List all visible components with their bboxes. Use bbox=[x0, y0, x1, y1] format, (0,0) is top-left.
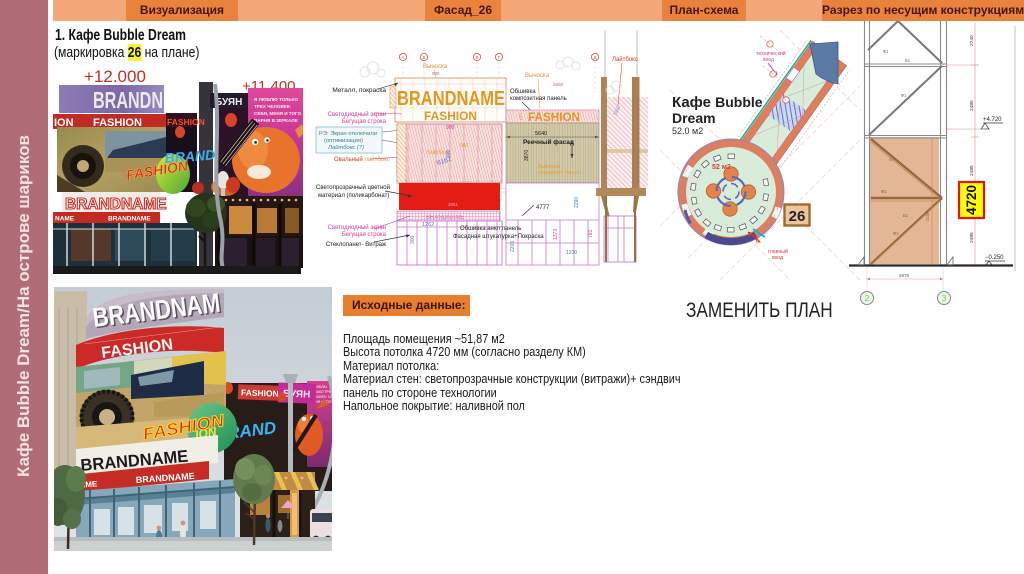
svg-text:Светодиодный экран: Светодиодный экран bbox=[328, 224, 386, 231]
svg-text:791: 791 bbox=[588, 229, 594, 238]
svg-text:Д: Д bbox=[593, 55, 596, 60]
svg-text:Лайтбокс (7): Лайтбокс (7) bbox=[327, 144, 364, 151]
svg-text:900: 900 bbox=[446, 125, 455, 131]
svg-text:главный: главный bbox=[768, 248, 788, 255]
svg-text:композитная панель: композитная панель bbox=[510, 96, 567, 102]
svg-text:2290: 2290 bbox=[574, 197, 580, 208]
svg-text:300: 300 bbox=[410, 235, 416, 244]
svg-text:Выноска: Выноска bbox=[525, 73, 550, 79]
svg-text:5640: 5640 bbox=[535, 131, 547, 137]
svg-text:4777: 4777 bbox=[536, 205, 550, 211]
svg-text:(оптимизация): (оптимизация) bbox=[324, 138, 363, 144]
svg-text:26: 26 bbox=[789, 208, 806, 225]
svg-text:Выноска: Выноска bbox=[423, 64, 448, 70]
svg-text:52.0 м2: 52.0 м2 bbox=[672, 126, 703, 136]
svg-text:ПАРНЯ В ЗЕРКАЛЕ: ПАРНЯ В ЗЕРКАЛЕ bbox=[254, 118, 298, 123]
svg-text:материал (поликарбонат): материал (поликарбонат) bbox=[318, 193, 389, 199]
svg-text:СЕБЯ, МЕНЯ И ТОГО: СЕБЯ, МЕНЯ И ТОГО bbox=[254, 111, 302, 116]
svg-text:БУЯН: БУЯН bbox=[283, 389, 311, 401]
svg-text:Б1: Б1 bbox=[903, 213, 909, 218]
svg-text:BRANDNAME: BRANDNAME bbox=[397, 88, 505, 110]
svg-text:BRANDN: BRANDN bbox=[93, 87, 163, 113]
svg-text:BRANDNAME: BRANDNAME bbox=[65, 196, 167, 213]
svg-text:Ф1: Ф1 bbox=[881, 189, 887, 194]
svg-text:4720: 4720 bbox=[964, 185, 979, 215]
svg-text:Кафе Bubble: Кафе Bubble bbox=[672, 94, 763, 111]
svg-text:980: 980 bbox=[460, 143, 469, 149]
svg-text:РЭ: Экран отключили: РЭ: Экран отключили bbox=[319, 131, 377, 137]
svg-text:Ф1: Ф1 bbox=[901, 93, 907, 98]
svg-text:Реечный фасад: Реечный фасад bbox=[523, 138, 574, 146]
svg-text:980: 980 bbox=[432, 71, 440, 76]
svg-text:BRANDNAME: BRANDNAME bbox=[108, 216, 151, 223]
svg-text:300: 300 bbox=[446, 149, 452, 158]
svg-text:FASHION: FASHION bbox=[424, 109, 477, 123]
svg-text:2159: 2159 bbox=[925, 211, 930, 221]
svg-text:Г: Г bbox=[498, 55, 501, 60]
svg-text:В: В bbox=[475, 55, 478, 60]
svg-text:3870: 3870 bbox=[524, 150, 530, 161]
svg-text:Ф1: Ф1 bbox=[883, 49, 889, 54]
svg-text:2878: 2878 bbox=[899, 273, 910, 278]
svg-text:FASHION: FASHION bbox=[167, 117, 205, 127]
svg-text:Бегущая строка: Бегущая строка bbox=[342, 119, 387, 125]
svg-text:Светопрозрачный цветной: Светопрозрачный цветной bbox=[316, 184, 390, 191]
svg-text:Обшивка: Обшивка bbox=[510, 89, 536, 95]
svg-text:Dream: Dream bbox=[672, 110, 716, 126]
svg-text:−0.250: −0.250 bbox=[985, 255, 1004, 261]
svg-text:Б1: Б1 bbox=[905, 58, 911, 63]
svg-text:2485: 2485 bbox=[969, 100, 975, 111]
svg-text:Светодиодный экран: Светодиодный экран bbox=[328, 111, 386, 118]
svg-text:вход: вход bbox=[772, 255, 783, 261]
svg-text:Б: Б bbox=[423, 55, 426, 60]
svg-text:Металл, покраска: Металл, покраска bbox=[332, 87, 386, 94]
svg-text:вход: вход bbox=[763, 57, 774, 63]
svg-text:2740: 2740 bbox=[969, 35, 975, 46]
svg-text:АРТ: АРТ bbox=[518, 112, 523, 120]
svg-text:1373: 1373 bbox=[553, 229, 559, 240]
svg-text:2551: 2551 bbox=[448, 202, 459, 207]
svg-text:BRANDNAME: BRANDNAME bbox=[426, 215, 464, 221]
svg-text:2206: 2206 bbox=[510, 241, 516, 252]
svg-text:2485: 2485 bbox=[969, 165, 975, 176]
svg-text:Обшивка анкл панель: Обшивка анкл панель bbox=[460, 226, 521, 232]
svg-text:NAME: NAME bbox=[55, 216, 75, 223]
svg-text:орнамент панно: орнамент панно bbox=[538, 170, 579, 176]
svg-text:ТРЕХ ЧЕЛОВЕК:: ТРЕХ ЧЕЛОВЕК: bbox=[254, 104, 292, 109]
svg-text:52 м2: 52 м2 bbox=[712, 164, 731, 171]
svg-text:А: А bbox=[401, 55, 404, 60]
svg-text:+4.720: +4.720 bbox=[983, 117, 1002, 123]
svg-text:Лайтбокс: Лайтбокс bbox=[612, 56, 638, 63]
svg-text:3: 3 bbox=[942, 294, 947, 303]
svg-text:2805: 2805 bbox=[553, 82, 564, 87]
svg-text:БУЯН: БУЯН bbox=[215, 97, 242, 108]
svg-text:Овальный лайтбокс: Овальный лайтбокс bbox=[334, 156, 390, 163]
svg-text:1262: 1262 bbox=[422, 222, 434, 228]
svg-text:2485: 2485 bbox=[969, 232, 975, 243]
svg-text:Стеклопанет- Витраж: Стеклопанет- Витраж bbox=[326, 242, 386, 248]
svg-text:1230: 1230 bbox=[566, 250, 577, 256]
svg-text:FASHION: FASHION bbox=[528, 110, 580, 124]
svg-text:Бегущая строка: Бегущая строка bbox=[342, 232, 387, 238]
svg-text:Я ЛЮБЛЮ ТОЛЬКО: Я ЛЮБЛЮ ТОЛЬКО bbox=[254, 97, 298, 102]
svg-text:Ф1: Ф1 bbox=[893, 231, 899, 236]
svg-text:FASHION: FASHION bbox=[241, 387, 279, 398]
svg-text:2: 2 bbox=[865, 294, 870, 303]
svg-text:Фасадная штукатурка+Покраска: Фасадная штукатурка+Покраска bbox=[453, 234, 544, 240]
